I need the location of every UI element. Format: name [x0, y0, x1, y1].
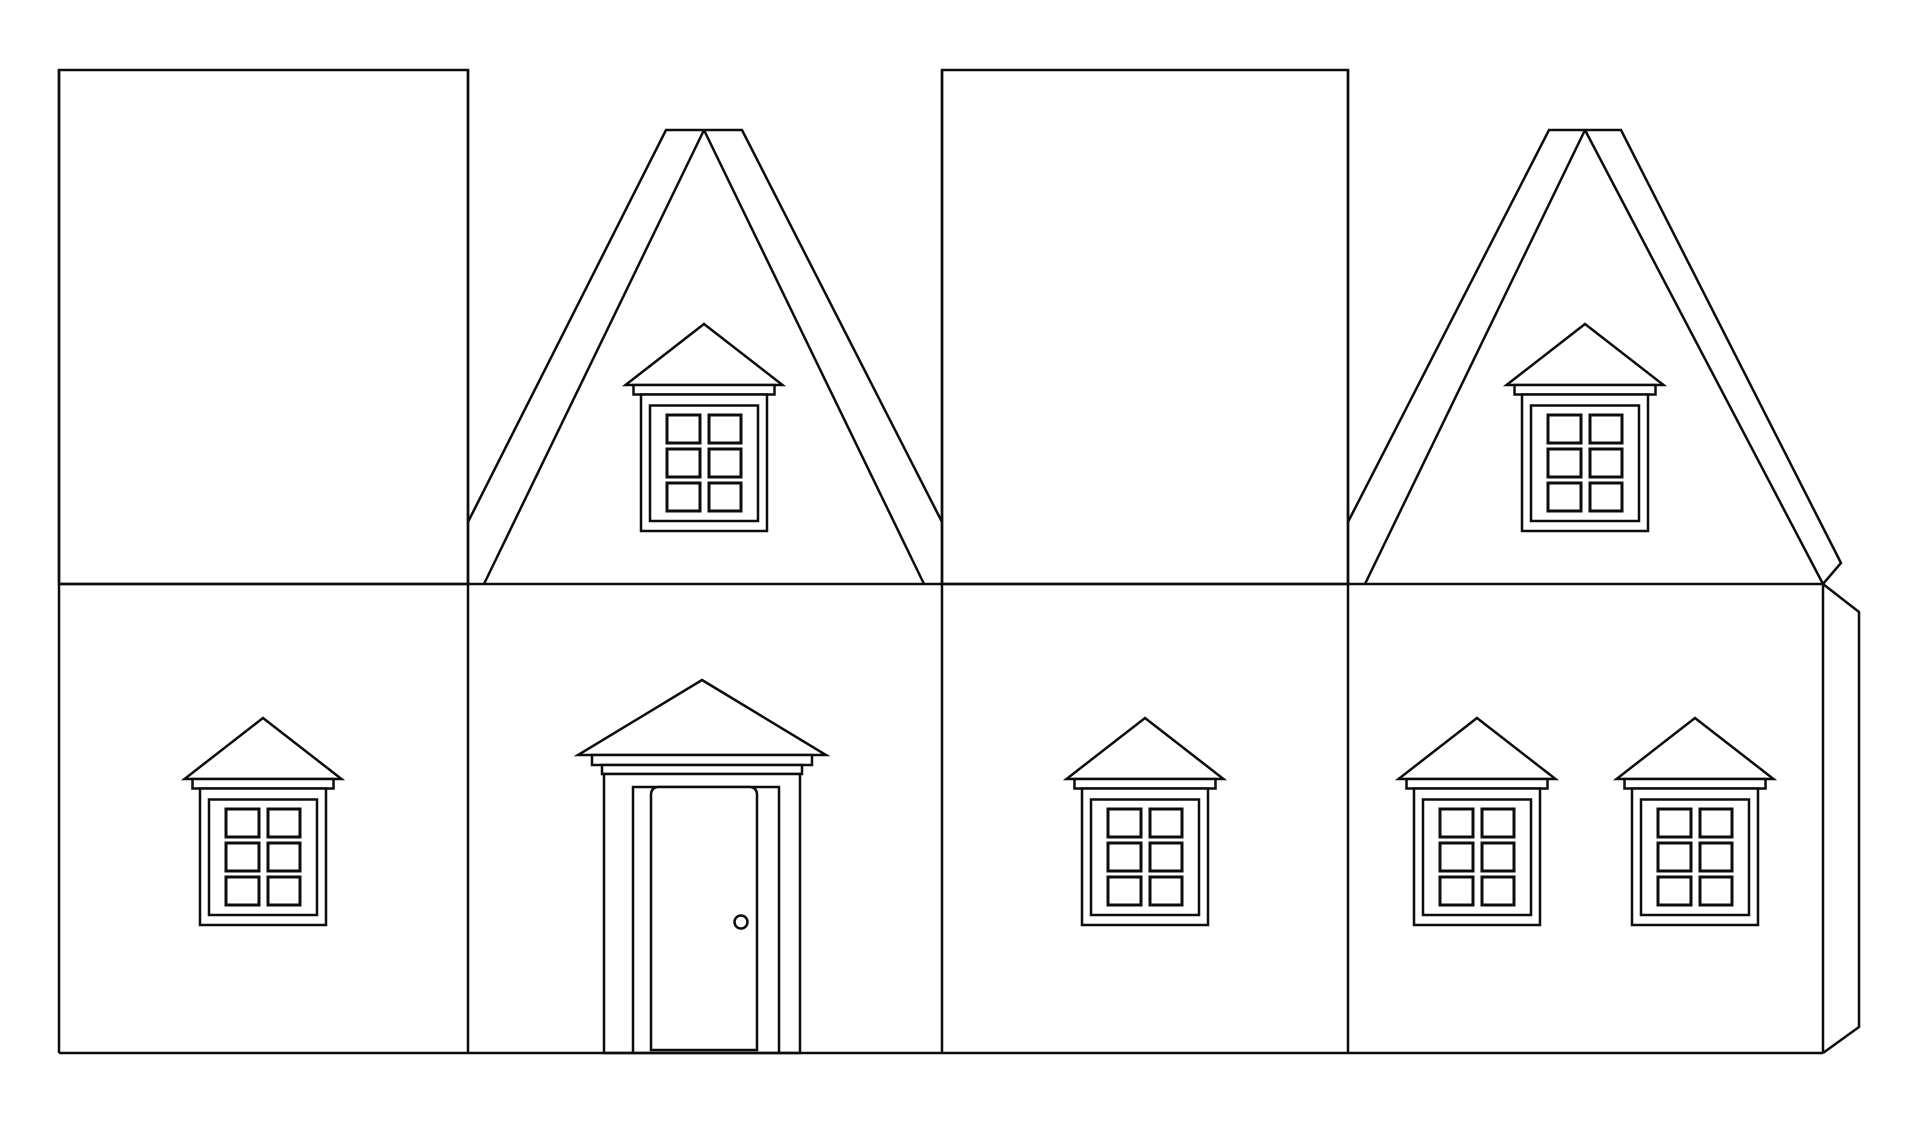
door-cornice-lower [602, 765, 802, 774]
glue-tab [1823, 584, 1859, 1053]
front-door [578, 680, 826, 1053]
door-knob [735, 916, 748, 929]
attic-window-right-gable [1507, 324, 1664, 531]
wall-window-3 [1399, 718, 1556, 925]
door-cornice-upper [592, 755, 812, 765]
template-outline [59, 70, 1859, 1053]
paper-house-template-canvas [0, 0, 1920, 1124]
shingle-roof-panel-right [942, 70, 1348, 584]
wall-window-1 [185, 718, 342, 925]
wall-window-4 [1617, 718, 1774, 925]
wall-window-2 [1067, 718, 1224, 925]
shingle-roof-panel-left [59, 70, 468, 584]
door-porch-roof [578, 680, 826, 755]
attic-window-left-gable [626, 324, 783, 531]
house-template-svg [0, 0, 1920, 1124]
